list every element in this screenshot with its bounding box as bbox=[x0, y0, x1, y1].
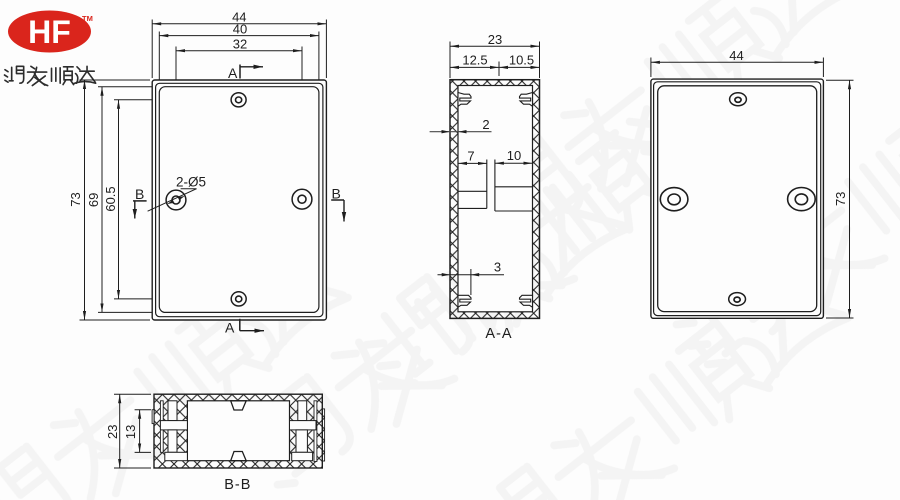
svg-text:10: 10 bbox=[507, 148, 521, 163]
svg-text:3: 3 bbox=[494, 260, 501, 275]
svg-text:60.5: 60.5 bbox=[103, 186, 118, 211]
svg-text:69: 69 bbox=[86, 193, 101, 207]
svg-text:A-A: A-A bbox=[485, 326, 512, 342]
svg-text:A: A bbox=[228, 65, 238, 81]
svg-text:B: B bbox=[332, 186, 341, 202]
svg-text:TM: TM bbox=[82, 14, 93, 23]
svg-text:32: 32 bbox=[233, 37, 247, 52]
svg-text:2: 2 bbox=[482, 117, 489, 132]
svg-text:23: 23 bbox=[105, 424, 120, 438]
svg-text:73: 73 bbox=[833, 192, 848, 206]
svg-text:73: 73 bbox=[68, 192, 83, 206]
svg-text:10.5: 10.5 bbox=[509, 53, 534, 68]
svg-text:44: 44 bbox=[729, 48, 743, 63]
svg-text:12.5: 12.5 bbox=[462, 53, 487, 68]
svg-text:B: B bbox=[135, 186, 144, 202]
svg-text:7: 7 bbox=[467, 149, 474, 164]
svg-text:40: 40 bbox=[233, 22, 247, 37]
svg-text:23: 23 bbox=[488, 32, 502, 47]
svg-text:B-B: B-B bbox=[224, 477, 251, 493]
svg-text:A: A bbox=[225, 320, 235, 336]
svg-text:13: 13 bbox=[123, 425, 138, 439]
svg-text:2-Ø5: 2-Ø5 bbox=[176, 175, 206, 190]
svg-text:HF: HF bbox=[28, 14, 71, 50]
